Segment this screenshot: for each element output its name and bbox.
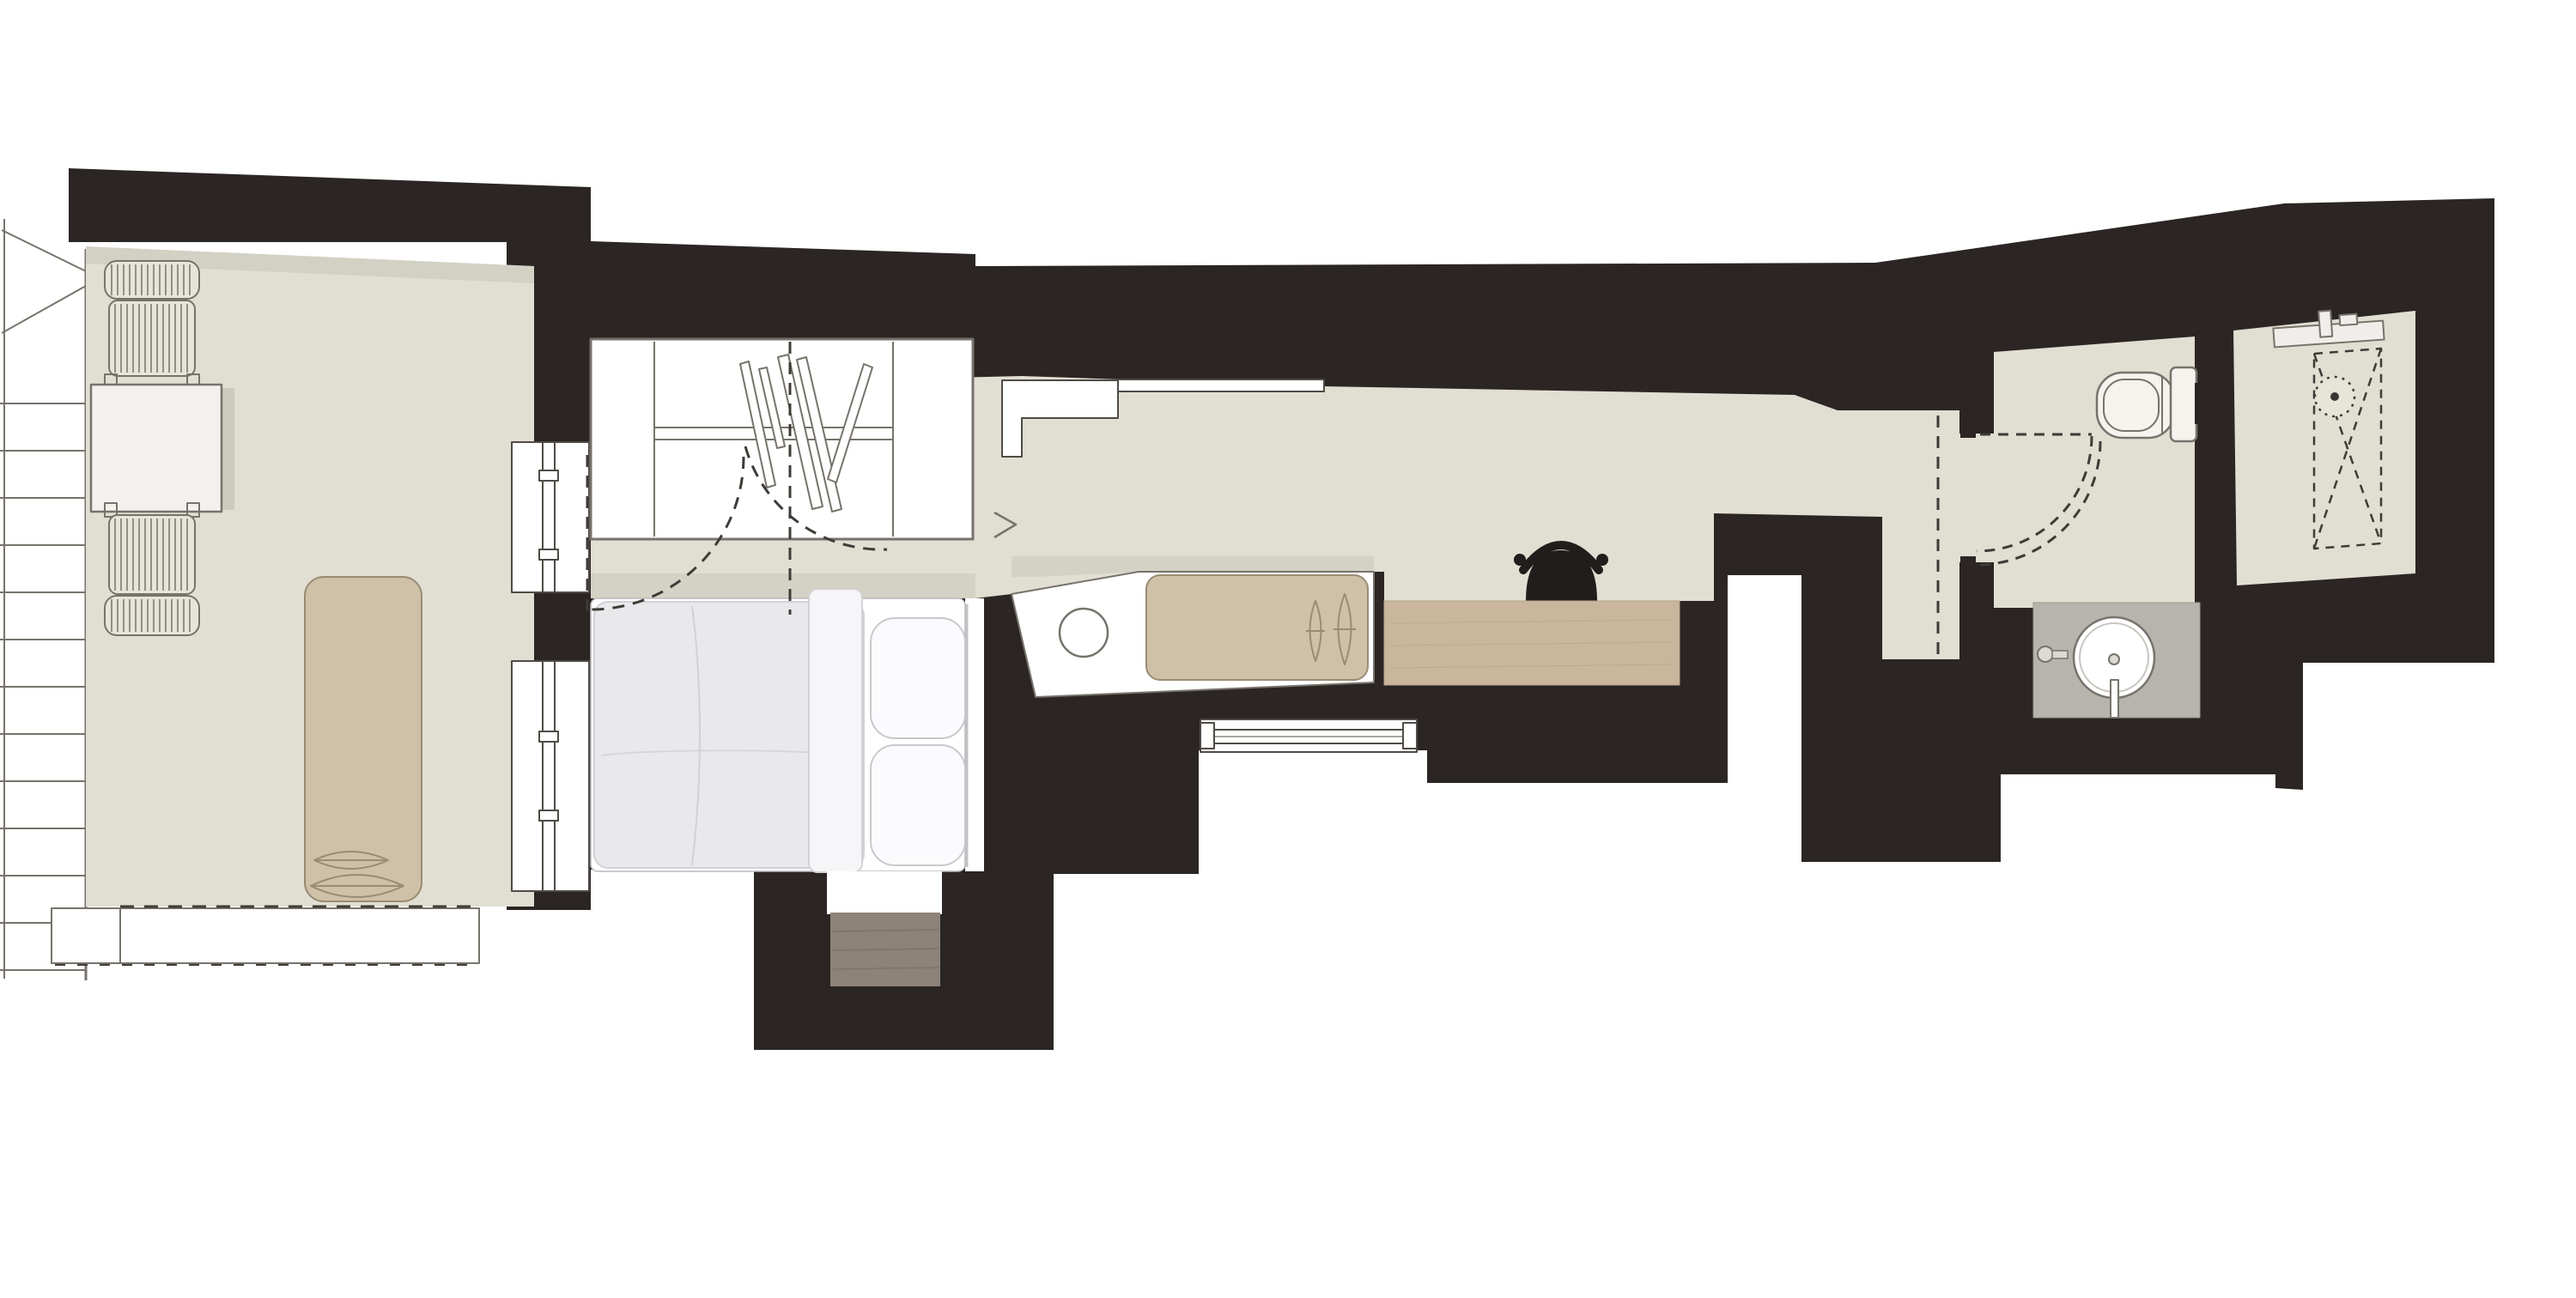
kitchen-wall-shelf [1118,379,1324,391]
balcony-ledge [52,908,479,963]
sink-tap-handle [2038,646,2053,662]
armchair-bottom-backrest [105,596,199,635]
shower-room-floor [2233,311,2415,585]
desk-chair-arm-right [1596,554,1608,566]
square-table [91,385,222,512]
daybed [1146,575,1368,680]
shower-drain-dot [2330,392,2339,401]
entry-niche [827,871,942,914]
round-side-table [1060,609,1108,657]
floor-plan-svg [0,0,2576,1298]
interior-window-lower [512,661,589,891]
desk-chair-arm-left [1514,554,1526,566]
bathroom-door-threshold [1959,434,1997,562]
floor-plan [0,0,2576,1298]
table-shadow [221,388,234,510]
kitchen-window-jamb-right [1403,723,1417,749]
bathroom-door-jamb-bottom [1960,556,1976,567]
bed-pillow-bottom [871,745,965,865]
armchair-bottom-seat [109,515,195,594]
lightwell-void [1728,575,1801,869]
armchair-top-backrest [105,261,199,299]
shower-fixture-bracket-1 [2318,311,2332,337]
bathroom-door-jamb-top [1960,428,1976,438]
toilet-tank [2171,367,2196,441]
armchair-top-seat [109,300,195,376]
interior-window-upper-block-1 [539,470,558,481]
kitchen-window-jamb-left [1200,723,1214,749]
interior-window-lower-block-2 [539,810,558,821]
sink-tap-lever [2052,651,2068,658]
sink-drain [2109,654,2119,664]
interior-window-upper [512,442,589,592]
sink-faucet [2111,680,2118,718]
interior-window-upper-block-2 [539,549,558,560]
toilet-wall-flush-plate [2195,383,2202,424]
bed-pillow-top [871,618,965,738]
interior-window-lower-block-1 [539,731,558,742]
bed-duvet-fold [809,589,862,872]
bed-platform-shade [591,573,975,598]
shower-fixture-bracket-2 [2340,314,2358,325]
